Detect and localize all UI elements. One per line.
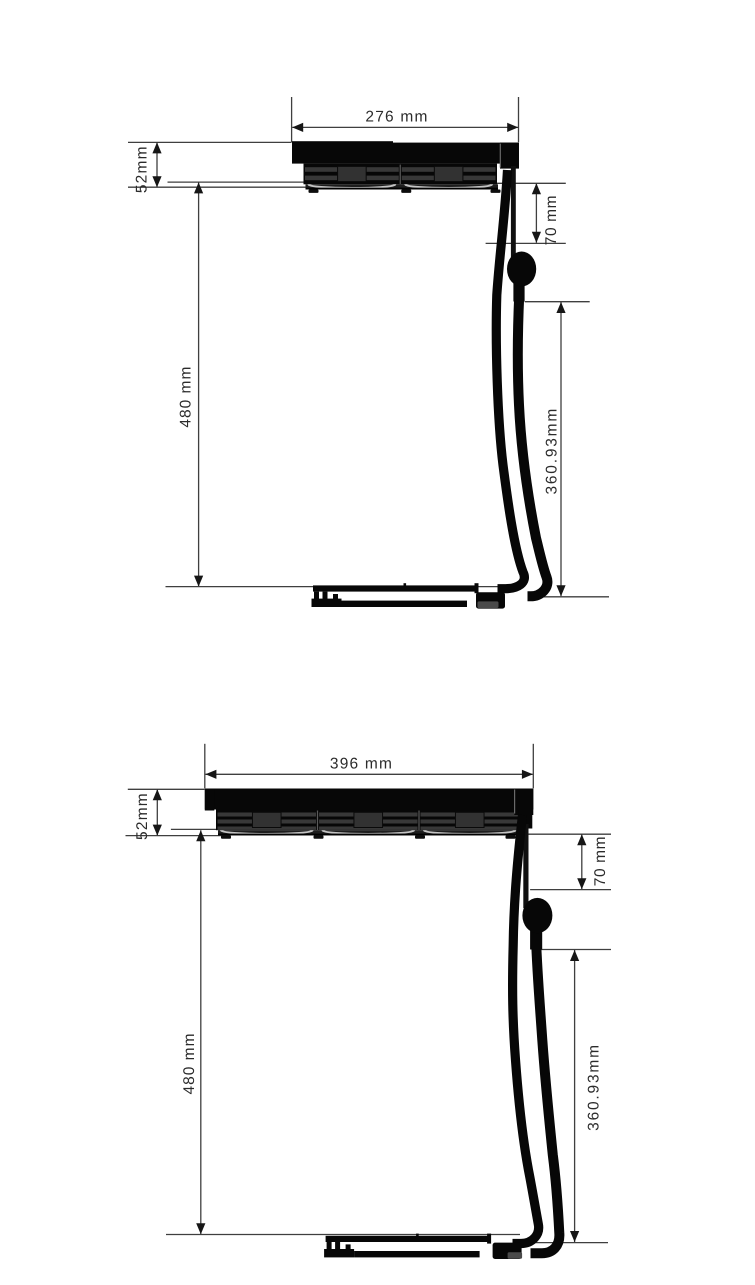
svg-text:360.93mm: 360.93mm: [586, 1043, 603, 1131]
svg-text:360.93mm: 360.93mm: [544, 407, 561, 495]
svg-text:480 mm: 480 mm: [178, 366, 195, 428]
svg-text:396 mm: 396 mm: [330, 755, 393, 772]
svg-text:480 mm: 480 mm: [181, 1033, 198, 1095]
svg-text:276 mm: 276 mm: [365, 109, 428, 126]
svg-text:52mm: 52mm: [134, 792, 151, 840]
svg-text:52mm: 52mm: [134, 145, 151, 193]
svg-text:70 mm: 70 mm: [592, 836, 609, 886]
svg-text:70 mm: 70 mm: [543, 195, 560, 245]
